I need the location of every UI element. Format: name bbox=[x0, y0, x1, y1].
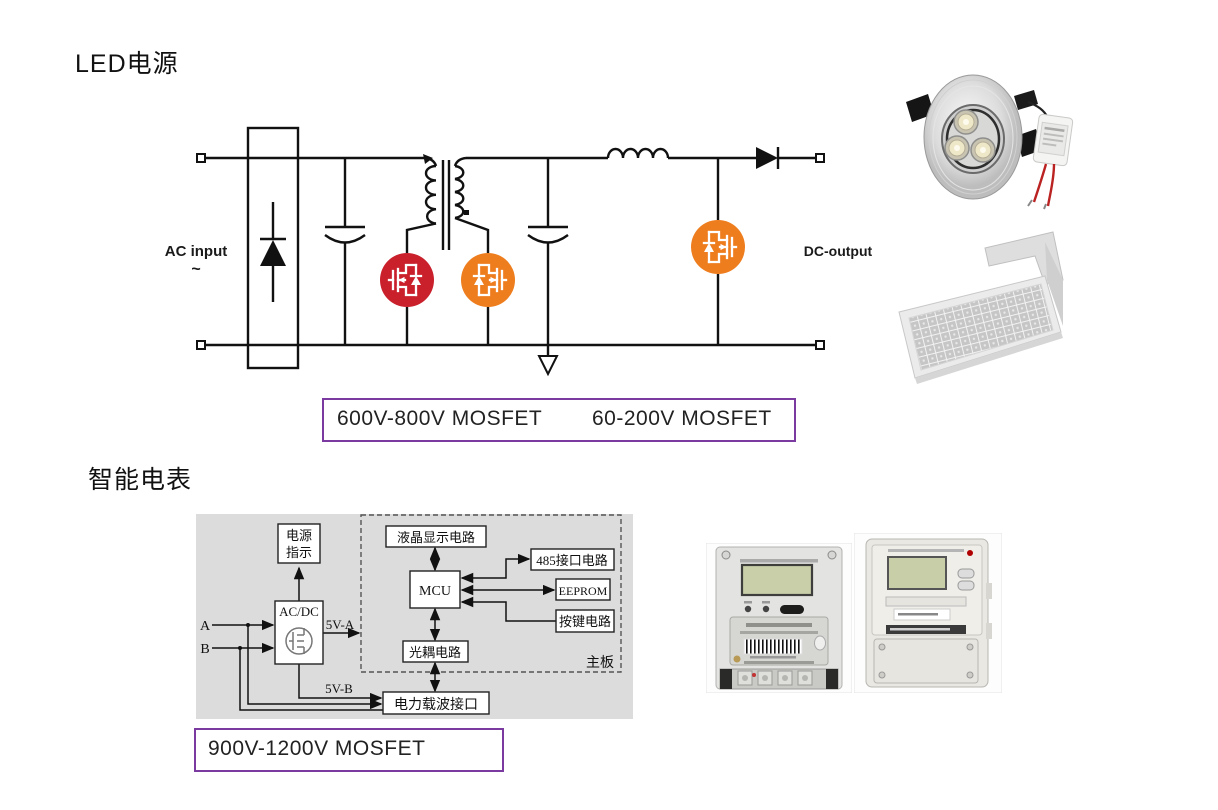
mcu-box: MCU bbox=[410, 571, 460, 608]
led-downlight-image bbox=[878, 66, 1083, 211]
output-inductor bbox=[608, 149, 668, 158]
svg-text:EEPROM: EEPROM bbox=[559, 584, 608, 598]
rail-5v-a-label: 5V-A bbox=[326, 617, 355, 632]
keypad-box: 按键电路 bbox=[556, 610, 614, 632]
page: LED电源 bbox=[0, 0, 1218, 810]
opto-box: 光耦电路 bbox=[403, 641, 468, 662]
led-driver-box bbox=[1033, 114, 1073, 166]
mosfet-red-icon bbox=[380, 253, 434, 345]
svg-text:485接口电路: 485接口电路 bbox=[536, 553, 608, 568]
meter-block-diagram: 电源 指示 AC/DC 液晶显示电路 MCU 485接口电路 EEPROM bbox=[196, 514, 633, 719]
svg-text:电力载波接口: 电力载波接口 bbox=[394, 696, 478, 713]
ac-input-label: AC input bbox=[165, 243, 227, 260]
voltage-box-1: 600V-800V MOSFET 60-200V MOSFET bbox=[322, 398, 796, 442]
voltage-box-2: 900V-1200V MOSFET bbox=[194, 728, 504, 772]
eeprom-box: EEPROM bbox=[556, 579, 610, 600]
ac-tilde-label: ~ bbox=[191, 261, 200, 278]
mosfet-orange-icon bbox=[461, 253, 515, 345]
mainboard-label: 主板 bbox=[586, 655, 614, 671]
voltage-label-900-1200: 900V-1200V MOSFET bbox=[208, 730, 425, 768]
svg-text:AC/DC: AC/DC bbox=[279, 604, 319, 619]
power-indicator-box: 电源 指示 bbox=[278, 524, 320, 563]
rs485-box: 485接口电路 bbox=[531, 549, 614, 570]
rail-5v-b-label: 5V-B bbox=[325, 681, 353, 696]
svg-text:电源: 电源 bbox=[286, 528, 312, 543]
filter-cap-1 bbox=[325, 158, 365, 345]
svg-text:指示: 指示 bbox=[286, 545, 312, 560]
input-a-label: A bbox=[200, 619, 211, 634]
input-b-label: B bbox=[200, 642, 209, 657]
three-phase-meter-image bbox=[854, 533, 1002, 693]
meter-section-title: 智能电表 bbox=[88, 460, 192, 496]
led-section-title: LED电源 bbox=[75, 44, 179, 80]
diagram-connectors bbox=[212, 548, 556, 710]
voltage-label-60-200: 60-200V MOSFET bbox=[592, 400, 772, 438]
svg-text:液晶显示电路: 液晶显示电路 bbox=[397, 530, 475, 545]
led-circuit-diagram: AC input ~ DC-output bbox=[160, 110, 880, 410]
ground-symbol bbox=[539, 345, 557, 374]
single-phase-meter-image bbox=[706, 543, 852, 693]
dc-output-label: DC-output bbox=[804, 243, 873, 259]
svg-text:按键电路: 按键电路 bbox=[559, 614, 611, 629]
plc-box: 电力载波接口 bbox=[383, 692, 489, 714]
mosfet-orange-2-icon bbox=[691, 158, 745, 345]
svg-text:光耦电路: 光耦电路 bbox=[409, 645, 461, 660]
voltage-label-600-800: 600V-800V MOSFET bbox=[337, 400, 542, 438]
output-diode bbox=[756, 147, 778, 169]
meter-block-diagram-panel: 电源 指示 AC/DC 液晶显示电路 MCU 485接口电路 EEPROM bbox=[196, 514, 633, 719]
filter-cap-2 bbox=[528, 158, 568, 345]
svg-text:MCU: MCU bbox=[419, 584, 451, 599]
lcd-circuit-box: 液晶显示电路 bbox=[386, 526, 486, 547]
led-panel-light-image bbox=[885, 226, 1110, 394]
transformer bbox=[407, 154, 488, 253]
acdc-box: AC/DC bbox=[275, 601, 323, 664]
